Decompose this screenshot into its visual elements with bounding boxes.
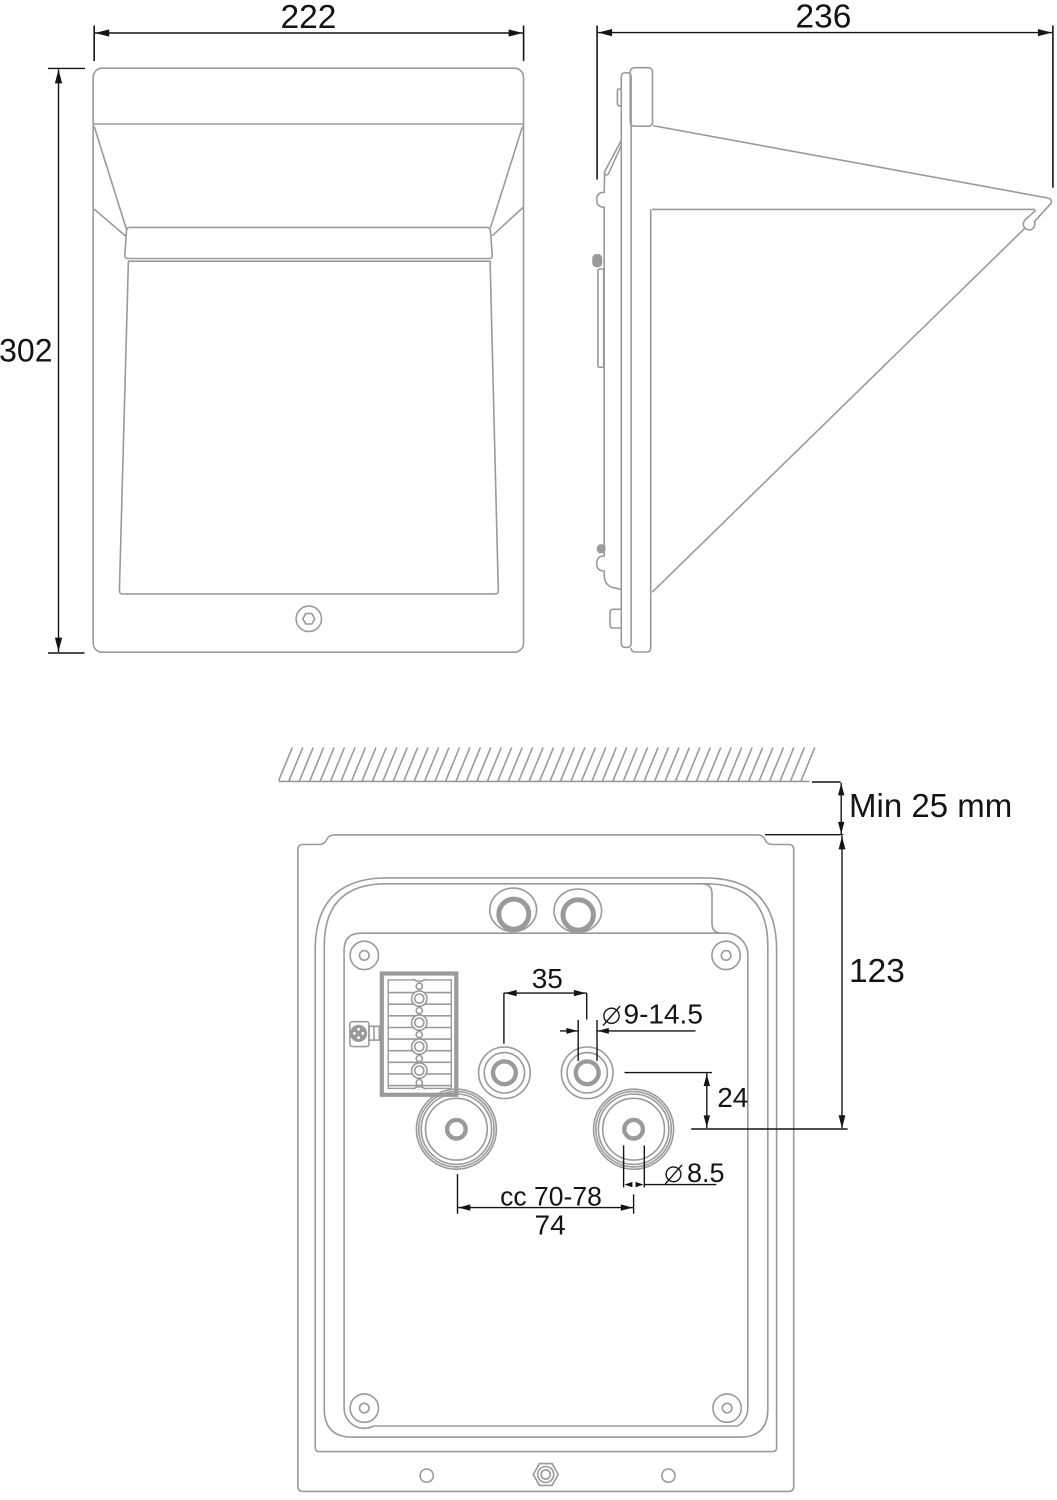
svg-text:236: 236 — [795, 0, 851, 36]
svg-text:cc 70-78: cc 70-78 — [500, 1181, 602, 1211]
svg-text:35: 35 — [532, 963, 563, 994]
svg-text:222: 222 — [281, 0, 337, 36]
svg-text:123: 123 — [849, 953, 905, 990]
svg-text:24: 24 — [717, 1082, 748, 1113]
svg-text:74: 74 — [535, 1209, 566, 1240]
svg-text:302: 302 — [0, 333, 53, 369]
svg-text:Min 25 mm: Min 25 mm — [849, 787, 1012, 824]
svg-text:9-14.5: 9-14.5 — [624, 999, 703, 1030]
svg-text:8.5: 8.5 — [687, 1158, 725, 1188]
